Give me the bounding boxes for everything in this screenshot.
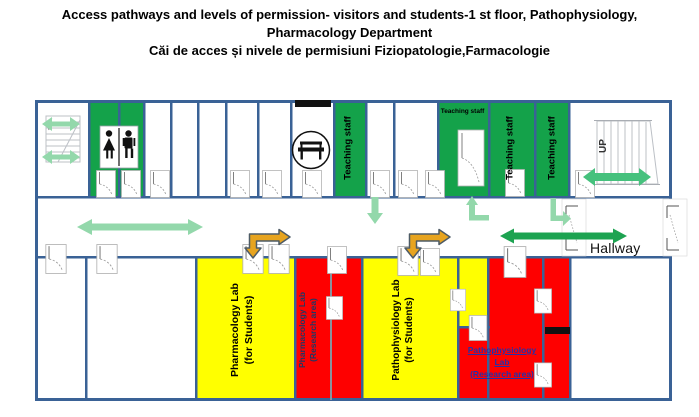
teaching-staff-label-2: Teaching staff: [437, 108, 488, 115]
pathophysiology-students-lab-line2: (for Students): [403, 259, 416, 401]
pathophysiology-research-lab-label: Pathophysiology Lab (Research area): [452, 344, 552, 380]
floor-plan-drawing: [0, 0, 699, 417]
elevator-top-bar: [295, 100, 331, 107]
teaching-staff-label-3: Teaching staff: [503, 100, 519, 197]
closed-door-bar: [545, 327, 570, 334]
teaching-staff-label-4: Teaching staff: [545, 100, 561, 197]
stairs-double-arrow-top: [42, 117, 80, 131]
pharmacology-research-lab-label: Pharmacology Lab (Research area): [297, 259, 321, 401]
pharmacology-research-lab-line1: Pharmacology Lab: [297, 259, 308, 401]
teaching-room-door: [458, 130, 484, 186]
pathophysiology-research-lab-line1: Pathophysiology: [452, 344, 552, 356]
restroom-icon: [100, 126, 138, 168]
pharmacology-research-lab-line2: (Research area): [308, 259, 319, 401]
pathophysiology-students-lab-label: Pathophysiology Lab (for Students): [390, 259, 418, 401]
teaching-staff-label-1: Teaching staff: [341, 100, 357, 197]
up-stairs-arrow: [583, 168, 651, 186]
hallway-door-swing-left: [562, 199, 586, 256]
pathophysiology-students-lab-line1: Pathophysiology Lab: [390, 259, 403, 401]
research-room-divider: [330, 257, 332, 400]
hallway-label: Hallway: [590, 240, 640, 256]
pathophysiology-research-lab-line3: (Research area): [452, 368, 552, 380]
pharmacology-students-lab-label: Pharmacology Lab (for Students): [228, 259, 258, 401]
pharmacology-students-lab-line1: Pharmacology Lab: [228, 259, 242, 401]
up-label: UP: [598, 131, 610, 161]
floor-plan-page: Access pathways and levels of permission…: [0, 0, 699, 417]
pharmacology-students-lab-line2: (for Students): [242, 259, 256, 401]
pathophysiology-research-lab-line2: Lab: [452, 356, 552, 368]
down-arrow: [367, 197, 383, 224]
elbow-arrow-up: [466, 196, 489, 221]
hallway-left-double-arrow: [77, 219, 203, 235]
hallway-door-swing-right: [663, 199, 687, 256]
bench-icon: [293, 132, 330, 169]
